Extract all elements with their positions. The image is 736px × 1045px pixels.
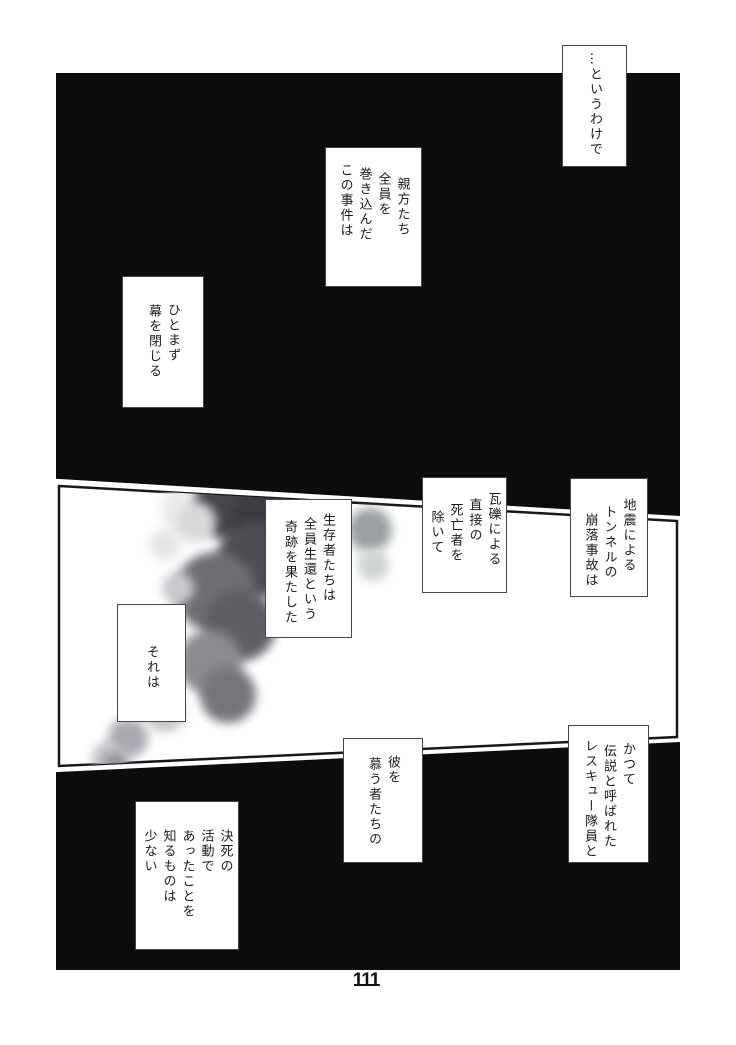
narration-line: あったことを [178,829,197,943]
narration-box-1: …というわけで [562,45,627,167]
narration-line: かつて [618,742,637,856]
narration-line: 彼を [383,755,402,856]
narration-line: …というわけで [585,52,604,160]
narration-line: 全員を [374,172,393,280]
smoke-blob [176,502,216,542]
narration-line: 直接の [465,498,484,586]
narration-line: 親方たち [393,177,412,280]
narration-box-4: 地震による トンネルの 崩落事故は [570,478,648,597]
narration-line: 巻き込んだ [355,167,374,280]
vertical-text: 地震による トンネルの 崩落事故は [581,485,638,590]
narration-line: 奇跡を果たした [280,520,299,631]
narration-line: 決死の [216,829,235,943]
narration-line: 瓦礫による [484,492,503,586]
vertical-text: 彼を 慕う者たちの [364,745,402,856]
vertical-text: 生存者たちは 全員生還という 奇跡を果たした [280,506,337,631]
narration-line: 死亡者を [446,503,465,586]
narration-line: 伝説と呼ばれた [599,744,618,856]
vertical-text: …というわけで [585,52,604,160]
smoke-blob [200,667,256,723]
narration-box-8: かつて 伝説と呼ばれた レスキュー隊員と [568,725,649,863]
narration-line: 少ない [140,829,159,943]
narration-line: 地震による [619,498,638,590]
vertical-text: それは [142,611,161,715]
vertical-text: ひとまず 幕を閉じる [144,283,182,401]
page-number: 111 [326,970,406,992]
vertical-text: 瓦礫による 直接の 死亡者を 除いて [427,484,503,586]
narration-line: ひとまず [163,303,182,401]
narration-line: 生存者たちは [318,513,337,631]
smoke-blob [348,508,392,552]
smoke-blob [162,572,194,604]
vertical-text: 親方たち 全員を 巻き込んだ この事件は [336,154,412,280]
narration-line: 崩落事故は [581,513,600,590]
vertical-text: 決死の 活動で あったことを 知るものは 少ない [140,808,235,943]
narration-box-6: 生存者たちは 全員生還という 奇跡を果たした [265,499,352,638]
narration-box-2: 親方たち 全員を 巻き込んだ この事件は [325,147,422,287]
narration-line: レスキュー隊員と [580,739,599,856]
narration-box-3: ひとまず 幕を閉じる [122,276,204,408]
narration-line: 除いて [427,510,446,586]
narration-line: 慕う者たちの [364,757,383,856]
narration-line: 幕を閉じる [144,304,163,401]
narration-line: 知るものは [159,829,178,943]
manga-page: …というわけで 親方たち 全員を 巻き込んだ この事件は ひとまず 幕を閉じる … [0,0,736,1045]
vertical-text: かつて 伝説と呼ばれた レスキュー隊員と [580,732,637,856]
narration-line: トンネルの [600,505,619,590]
narration-line: この事件は [336,163,355,280]
smoke-blob [357,549,389,581]
narration-line: それは [142,645,161,715]
narration-box-10: 決死の 活動で あったことを 知るものは 少ない [135,801,239,950]
narration-line: 全員生還という [299,517,318,631]
narration-box-9: 彼を 慕う者たちの [343,738,423,863]
smoke-blob [149,529,181,561]
narration-line: 活動で [197,829,216,943]
narration-box-5: 瓦礫による 直接の 死亡者を 除いて [422,477,507,593]
narration-box-7: それは [117,604,186,722]
